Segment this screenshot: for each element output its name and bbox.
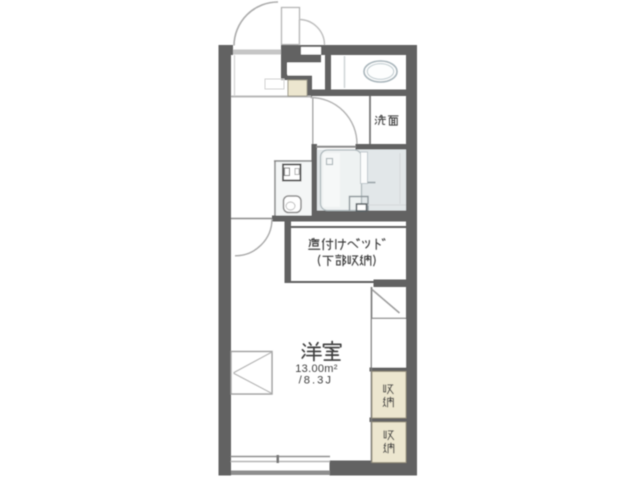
svg-text:13.00m²: 13.00m² (295, 363, 337, 375)
svg-text:/8.3J: /8.3J (299, 375, 333, 387)
